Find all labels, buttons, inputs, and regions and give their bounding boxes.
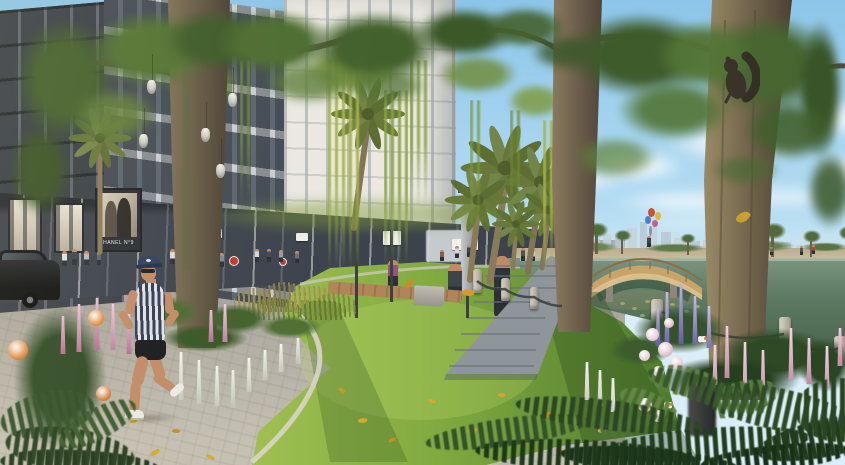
vignette-overlay: [0, 0, 845, 465]
park-lakeside-render: HANEL N°9: [0, 0, 845, 465]
